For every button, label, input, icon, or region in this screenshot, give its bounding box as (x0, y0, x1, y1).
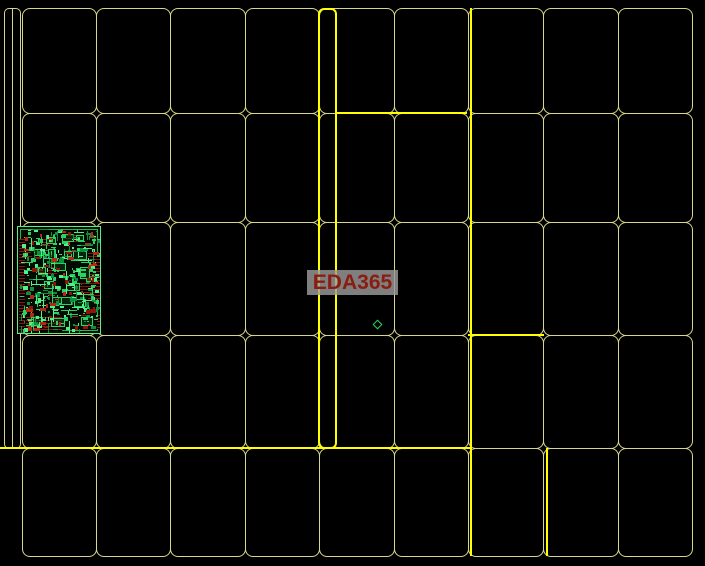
pcb-trace-line (47, 268, 48, 272)
pcb-pad (44, 326, 48, 328)
pcb-trace (68, 281, 69, 283)
panel-cell[interactable] (96, 448, 171, 557)
pcb-pad (63, 292, 66, 296)
pcb-trace (96, 231, 97, 232)
pcb-trace (24, 321, 25, 323)
panel-cell[interactable] (170, 222, 246, 336)
panel-cell[interactable] (96, 222, 171, 336)
pcb-trace (93, 271, 96, 273)
panel-cell[interactable] (543, 8, 619, 114)
pcb-trace-line (34, 247, 35, 252)
pcb-trace (64, 249, 65, 251)
pcb-pad (40, 234, 42, 237)
pcb-trace (79, 329, 80, 333)
pcb-trace (40, 285, 41, 286)
pcb-trace (64, 317, 68, 321)
pcb-pad (88, 265, 91, 269)
pcb-trace-line (37, 250, 38, 255)
panel-cell[interactable] (618, 222, 693, 336)
panel-cell[interactable] (245, 8, 320, 114)
pcb-trace (56, 301, 59, 305)
pcb-pad (28, 283, 30, 286)
pcb-trace-line (90, 276, 101, 277)
pcb-pad (81, 291, 83, 293)
pcb-pad (42, 286, 46, 287)
pcb-pad (81, 315, 87, 316)
pcb-trace (20, 296, 24, 297)
panel-cell[interactable] (170, 335, 246, 449)
pcb-trace (86, 302, 89, 305)
pcb-trace-line (69, 246, 70, 251)
panel-cell[interactable] (543, 335, 619, 449)
pcb-pad (92, 278, 94, 282)
pcb-pad (91, 264, 97, 266)
pcb-trace (51, 268, 54, 269)
pcb-pad (66, 252, 72, 254)
pcb-trace (95, 290, 99, 293)
pcb-trace (78, 302, 82, 303)
pcb-trace-line (66, 284, 67, 294)
panel-cell[interactable] (618, 8, 693, 114)
pcb-pad (27, 256, 32, 257)
pcb-trace-line (78, 260, 92, 261)
panel-cell[interactable] (618, 113, 693, 223)
pcb-trace (45, 317, 46, 320)
pcb-trace (78, 323, 79, 326)
pcb-pad (85, 243, 90, 244)
pcb-pad (25, 252, 31, 253)
pcb-trace (52, 273, 53, 277)
pcb-trace-line (74, 284, 75, 291)
pcb-trace (70, 276, 73, 277)
pcb-pad (65, 280, 68, 284)
pcb-trace (92, 300, 96, 302)
pcb-pad (95, 282, 99, 283)
pcb-pad (27, 291, 30, 292)
pcb-pad (49, 238, 52, 240)
panel-cell[interactable] (543, 113, 619, 223)
panel-cell[interactable] (543, 448, 619, 557)
pcb-trace (62, 241, 66, 244)
pcb-trace-line (35, 316, 36, 321)
pcb-trace (84, 321, 86, 322)
pcb-pad (39, 272, 45, 273)
pcb-pad (83, 326, 88, 329)
panel-cell[interactable] (96, 8, 171, 114)
pcb-pad (28, 309, 33, 312)
panel-cell[interactable] (394, 335, 469, 449)
pcb-pad (69, 292, 72, 295)
pcb-pad (75, 326, 78, 330)
pcb-trace (48, 311, 50, 313)
pcb-trace-line (61, 310, 77, 311)
pcb-pad (68, 257, 74, 260)
pcb-trace (93, 285, 96, 286)
panel-cell[interactable] (170, 8, 246, 114)
pcb-trace-line (33, 279, 44, 280)
pcb-trace (93, 241, 95, 244)
pcb-trace (59, 243, 61, 245)
pcb-trace (57, 270, 59, 272)
pcb-trace (87, 321, 89, 322)
pcb-trace (51, 251, 52, 255)
pcb-pad (55, 299, 59, 300)
pcb-trace-line (73, 234, 74, 240)
panel-cell[interactable] (468, 113, 544, 223)
panel-cell[interactable] (96, 113, 171, 223)
pcb-pad (32, 241, 34, 245)
pcb-trace (72, 247, 74, 249)
pcb-trace-line (43, 293, 44, 309)
panel-cell[interactable] (96, 335, 171, 449)
pcb-pad (90, 237, 96, 238)
panel-cell[interactable] (22, 448, 97, 557)
pcb-trace (96, 315, 98, 317)
pcb-trace (60, 306, 64, 308)
pcb-trace-line (49, 262, 64, 263)
pcb-trace (27, 275, 29, 276)
pcb-pad (93, 252, 99, 255)
pcb-trace (20, 285, 22, 289)
pcb-trace (53, 243, 57, 245)
pcb-trace (51, 232, 52, 236)
pcb-trace (28, 230, 31, 231)
pcb-pad (94, 303, 96, 304)
panel-cell[interactable] (394, 113, 469, 223)
panel-cell[interactable] (468, 222, 544, 336)
pcb-trace-line (24, 306, 25, 317)
pcb-trace (56, 321, 58, 325)
pcb-trace (68, 276, 69, 278)
pcb-trace-line (33, 229, 49, 230)
pcb-pad (26, 308, 28, 312)
pcb-trace-line (41, 244, 48, 245)
pcb-trace (45, 250, 48, 251)
pcb-trace (96, 307, 101, 309)
pcb-trace-line (81, 262, 91, 263)
panel-cell[interactable] (468, 8, 544, 114)
pcb-trace-line (53, 307, 54, 322)
panel-cell[interactable] (618, 448, 693, 557)
pcb-trace-line (72, 251, 85, 252)
pcb-trace (28, 232, 31, 235)
pcb-pad (40, 308, 46, 311)
panel-cell[interactable] (394, 448, 469, 557)
pcb-pad (93, 307, 95, 310)
pcb-trace-line (61, 323, 65, 324)
pcb-trace (30, 287, 34, 291)
score-line-vertical-right2 (546, 448, 548, 556)
pcb-trace-line (74, 232, 84, 233)
pcb-trace (62, 257, 65, 258)
panel-cell[interactable] (394, 8, 469, 114)
pcb-pad (68, 232, 71, 235)
pcb-trace-line (39, 239, 43, 240)
pcb-trace (81, 269, 86, 271)
pcb-pad (72, 250, 76, 251)
pcb-trace (39, 305, 41, 306)
pcb-trace-line (82, 294, 94, 295)
pcb-trace (48, 297, 50, 300)
pcb-trace-line (71, 260, 78, 261)
pcb-pad (68, 242, 70, 245)
highlight-hline-top (336, 112, 467, 114)
pcb-trace-line (81, 245, 91, 246)
panel-cell[interactable] (22, 113, 97, 223)
pcb-pad (69, 280, 71, 281)
pcb-pad (32, 268, 37, 272)
pcb-panel-canvas[interactable]: EDA365 (0, 0, 705, 566)
pcb-pad (85, 244, 89, 245)
pcb-pad (63, 273, 65, 276)
pcb-trace (36, 316, 39, 319)
pcb-trace (62, 236, 63, 239)
pcb-trace (27, 302, 30, 305)
pcb-trace-line (39, 293, 49, 294)
pcb-trace (83, 313, 85, 314)
pcb-pad (39, 269, 43, 271)
pcb-pad (49, 242, 53, 243)
pcb-trace (23, 329, 25, 333)
pcb-trace (57, 314, 60, 315)
pcb-trace (81, 284, 82, 285)
pcb-trace-line (69, 321, 70, 333)
pcb-trace (47, 284, 48, 287)
pcb-trace (54, 310, 58, 311)
pcb-trace-line (51, 263, 55, 264)
pcb-trace-line (48, 323, 49, 334)
pcb-pad (88, 324, 90, 326)
pcb-trace-line (52, 284, 53, 298)
pcb-trace-line (37, 292, 38, 300)
pcb-trace (94, 319, 98, 320)
pcb-trace-line (21, 315, 22, 321)
pcb-trace (70, 298, 74, 302)
pcb-pad (91, 232, 93, 236)
pcb-trace (53, 329, 58, 330)
pcb-pad (72, 316, 78, 317)
pcb-trace (72, 302, 73, 305)
panel-cell[interactable] (245, 335, 320, 449)
pcb-trace-line (26, 286, 27, 290)
pcb-pad (34, 328, 40, 331)
pcb-trace (58, 250, 59, 253)
pcb-trace (27, 257, 29, 261)
panel-cell[interactable] (22, 335, 97, 449)
pcb-trace-line (49, 252, 50, 268)
pcb-trace-line (67, 314, 78, 315)
pcb-trace (31, 302, 32, 303)
pcb-pad (93, 263, 96, 264)
pcb-pad (56, 268, 60, 270)
pcb-trace-line (37, 301, 38, 307)
eda365-watermark: EDA365 (307, 270, 398, 295)
breakaway-rail-left-divider (12, 9, 13, 448)
pcb-trace (91, 326, 96, 329)
pcb-trace-line (92, 285, 93, 294)
pcb-pad (62, 231, 66, 233)
pcb-trace (58, 230, 61, 232)
pcb-trace-line (72, 307, 85, 308)
watermark-text: EDA365 (313, 270, 392, 295)
pcb-trace-line (32, 284, 46, 285)
pcb-trace (38, 299, 41, 303)
panel-cell[interactable] (245, 113, 320, 223)
pcb-trace-line (43, 252, 44, 264)
pcb-trace-line (22, 256, 26, 257)
panel-cell[interactable] (245, 448, 320, 557)
pcb-trace (91, 316, 93, 318)
pcb-trace-line (24, 262, 33, 263)
highlight-hline-bottom (0, 447, 471, 449)
panel-cell[interactable] (170, 113, 246, 223)
pcb-trace-line (27, 319, 33, 320)
pcb-trace (57, 295, 58, 298)
pcb-pad (30, 295, 34, 299)
pcb-trace-line (76, 285, 77, 301)
panel-cell[interactable] (468, 335, 544, 449)
pcb-trace-line (78, 241, 85, 242)
pcb-pad (28, 321, 32, 322)
panel-cell[interactable] (543, 222, 619, 336)
pcb-pad (50, 303, 56, 306)
pcb-board[interactable] (17, 226, 101, 334)
pcb-trace (78, 272, 81, 276)
pcb-pad (49, 294, 52, 296)
pcb-pad (25, 237, 28, 241)
highlight-hline-mid (468, 334, 544, 336)
pcb-trace (81, 273, 86, 277)
pcb-trace-line (26, 325, 39, 326)
pcb-trace (67, 285, 70, 286)
pcb-trace (72, 279, 74, 283)
panel-cell[interactable] (394, 222, 469, 336)
pcb-pad (89, 283, 91, 284)
pcb-pad (52, 258, 57, 262)
pcb-pad (30, 313, 34, 317)
pcb-pad (35, 257, 40, 259)
pcb-copper-hatch (97, 315, 101, 329)
pcb-trace-line (75, 271, 79, 272)
pcb-trace-line (57, 231, 58, 241)
pcb-pad (22, 290, 25, 291)
pcb-pad (53, 282, 56, 286)
pcb-trace (53, 235, 55, 239)
pcb-trace (52, 270, 55, 271)
pcb-trace-line (39, 273, 48, 274)
pcb-trace (83, 317, 88, 320)
pcb-trace-line (87, 231, 88, 240)
pcb-pad (24, 249, 29, 251)
pcb-pad (40, 322, 46, 325)
pcb-trace-line (21, 326, 22, 334)
panel-cell[interactable] (170, 448, 246, 557)
pcb-trace-line (41, 248, 42, 256)
pcb-pad (44, 265, 49, 267)
pcb-trace (97, 239, 101, 240)
pcb-pad (46, 304, 48, 308)
score-line-vertical-right (470, 8, 472, 556)
pcb-pad (28, 327, 32, 331)
pcb-trace-line (84, 300, 92, 301)
pcb-trace (34, 230, 38, 232)
pcb-pad (87, 278, 91, 281)
panel-cell[interactable] (618, 335, 693, 449)
breakaway-rail-center[interactable] (318, 8, 337, 449)
panel-cell[interactable] (22, 8, 97, 114)
pcb-trace-line (83, 248, 92, 249)
pcb-trace-line (31, 281, 32, 286)
pcb-pad (59, 322, 61, 326)
pcb-pad (49, 316, 52, 318)
pcb-trace (60, 286, 61, 290)
panel-cell[interactable] (319, 448, 395, 557)
pcb-trace-line (46, 235, 47, 249)
pcb-trace (59, 254, 61, 255)
panel-cell[interactable] (468, 448, 544, 557)
